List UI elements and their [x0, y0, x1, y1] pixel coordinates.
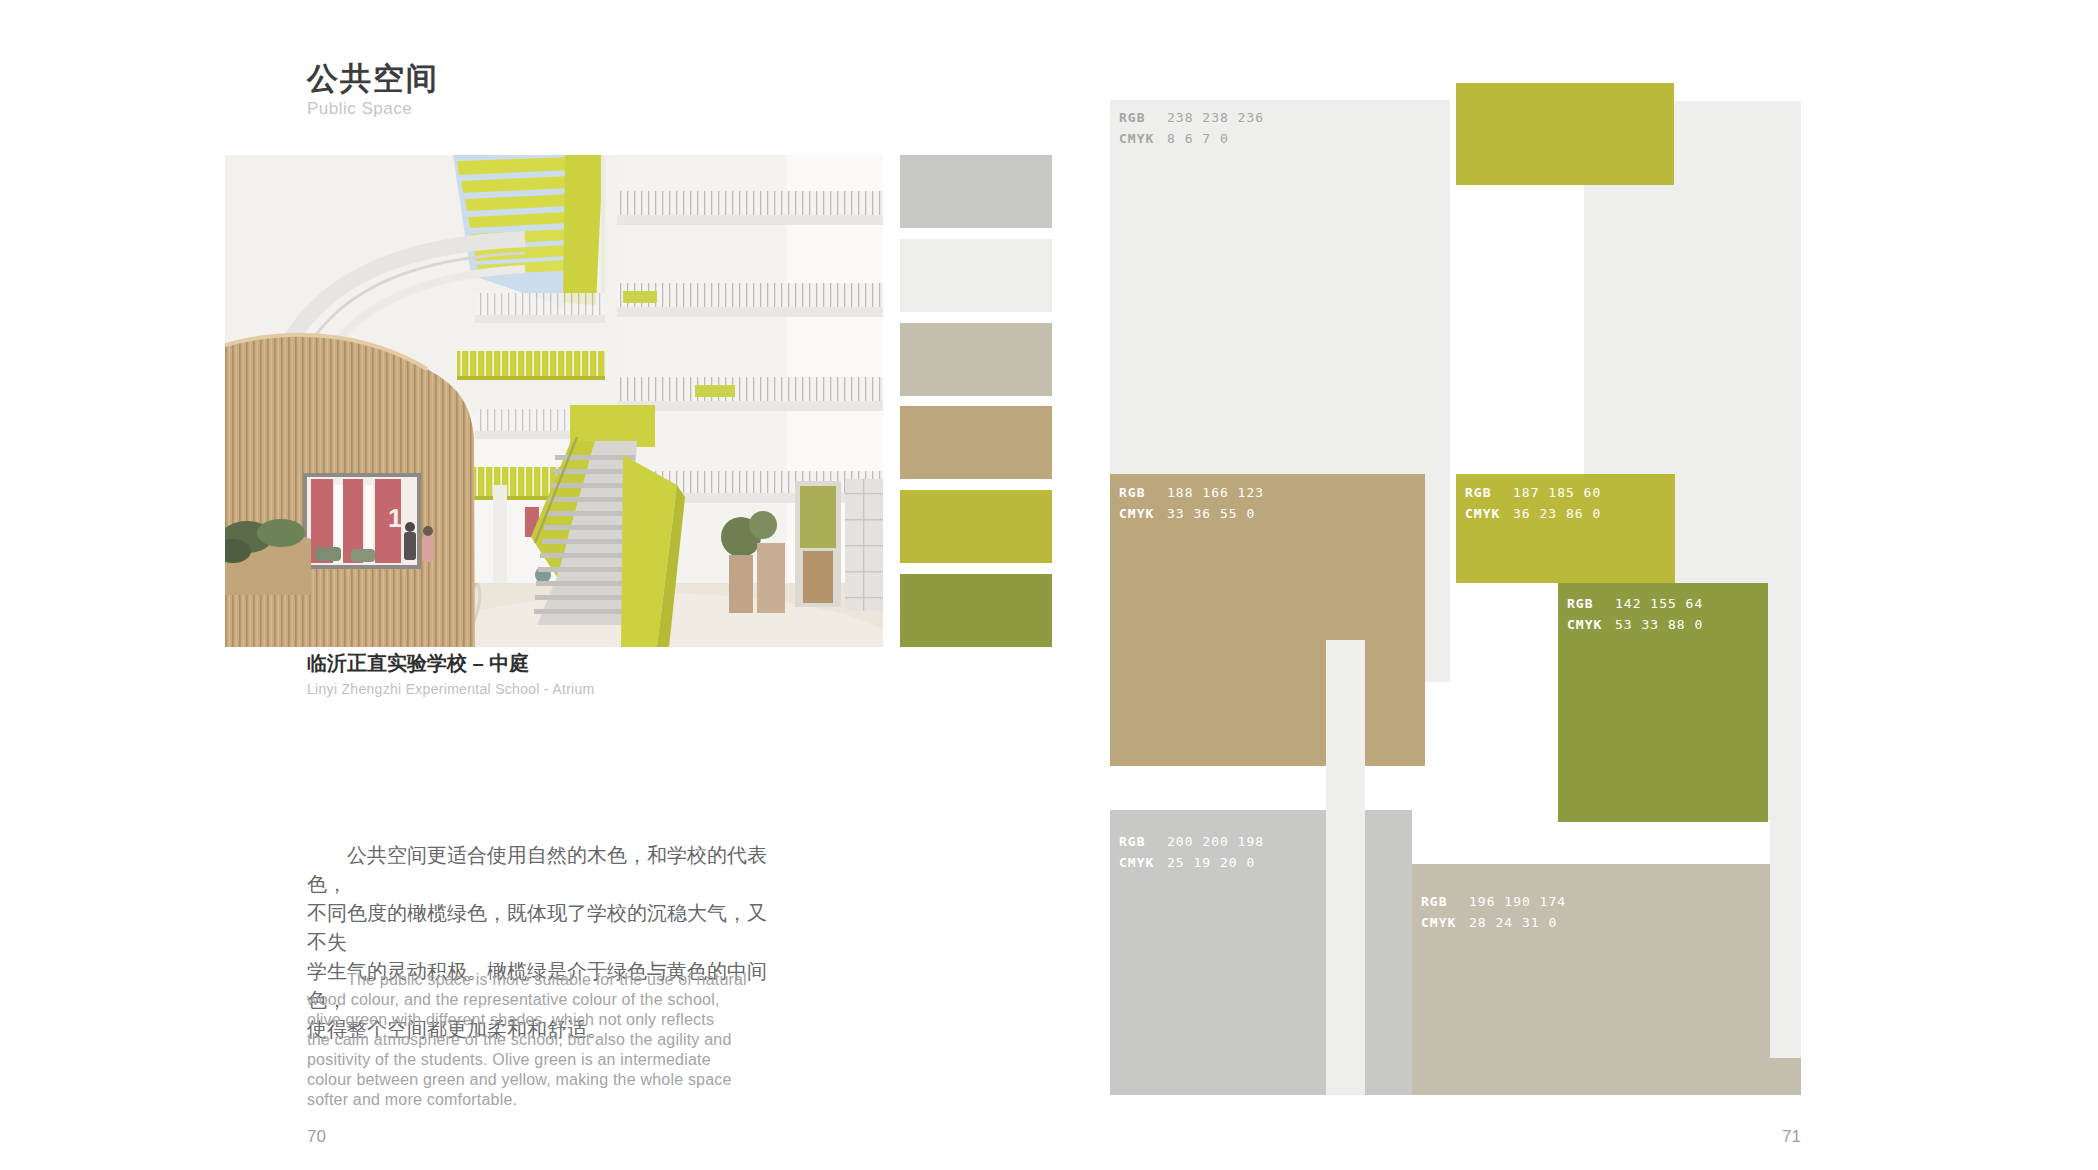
body-zh-line: 不同色度的橄榄绿色，既体现了学校的沉稳大气，又不失: [307, 899, 777, 957]
color-spec-light-gray: RGB238 238 236 CMYK8 6 7 0: [1119, 107, 1264, 149]
color-block-light-strip: [1326, 640, 1365, 1095]
color-block-greige: RGB196 190 174 CMYK28 24 31 0: [1412, 864, 1770, 1095]
color-block-olive: RGB142 155 64 CMYK53 33 88 0: [1558, 583, 1768, 822]
photo-caption-en: Linyi Zhengzhi Experimental School - Atr…: [307, 681, 595, 697]
color-spec-greige: RGB196 190 174 CMYK28 24 31 0: [1421, 891, 1566, 933]
body-en-line: positivity of the students. Olive green …: [307, 1050, 769, 1070]
page-number-left: 70: [307, 1127, 326, 1147]
rgb-label: RGB: [1119, 482, 1167, 503]
swatch-yellow-green: [900, 490, 1052, 563]
cmyk-value: 36 23 86 0: [1513, 503, 1601, 524]
cmyk-value: 25 19 20 0: [1167, 852, 1255, 873]
page-title: 公共空间: [307, 58, 439, 100]
cmyk-value: 28 24 31 0: [1469, 912, 1557, 933]
color-block-greige-extension: [1770, 1058, 1801, 1095]
body-en-line: The public space is more suitable for th…: [307, 970, 769, 990]
swatch-tan: [900, 406, 1052, 479]
rgb-value: 188 166 123: [1167, 482, 1264, 503]
cmyk-value: 33 36 55 0: [1167, 503, 1255, 524]
rgb-value: 196 190 174: [1469, 891, 1566, 912]
page-subtitle: Public Space: [307, 99, 412, 119]
body-paragraph-en: The public space is more suitable for th…: [307, 970, 769, 1110]
spread-page: 公共空间 Public Space: [0, 0, 2098, 1170]
swatch-gray: [900, 155, 1052, 228]
body-en-line: wood colour, and the representative colo…: [307, 990, 769, 1010]
cmyk-label: CMYK: [1421, 912, 1469, 933]
rgb-value: 187 185 60: [1513, 482, 1601, 503]
page-number-right: 71: [1770, 1127, 1801, 1147]
body-zh-line: 公共空间更适合使用自然的木色，和学校的代表色，: [307, 841, 777, 899]
color-block-yellow-green-top: [1456, 83, 1674, 185]
rgb-label: RGB: [1119, 831, 1167, 852]
rgb-label: RGB: [1465, 482, 1513, 503]
cmyk-label: CMYK: [1119, 128, 1167, 149]
color-spec-olive: RGB142 155 64 CMYK53 33 88 0: [1567, 593, 1703, 635]
cmyk-label: CMYK: [1465, 503, 1513, 524]
svg-text:1: 1: [388, 503, 402, 533]
color-block-light-gray-sliver: [1770, 820, 1801, 1058]
atrium-photo: 1: [225, 155, 883, 647]
rgb-value: 142 155 64: [1615, 593, 1703, 614]
rgb-label: RGB: [1567, 593, 1615, 614]
color-spec-yellow-green: RGB187 185 60 CMYK36 23 86 0: [1465, 482, 1601, 524]
body-en-line: olive green with different shades, which…: [307, 1010, 769, 1030]
rgb-value: 200 200 198: [1167, 831, 1264, 852]
swatch-olive-green: [900, 574, 1052, 647]
rgb-label: RGB: [1421, 891, 1469, 912]
color-block-tan: RGB188 166 123 CMYK33 36 55 0: [1110, 474, 1425, 766]
cmyk-label: CMYK: [1567, 614, 1615, 635]
photo-caption-zh: 临沂正直实验学校 – 中庭: [307, 650, 529, 677]
color-block-gray: RGB200 200 198 CMYK25 19 20 0: [1110, 810, 1412, 1095]
swatch-light-gray: [900, 239, 1052, 312]
cmyk-value: 53 33 88 0: [1615, 614, 1703, 635]
body-en-line: colour between green and yellow, making …: [307, 1070, 769, 1090]
color-spec-tan: RGB188 166 123 CMYK33 36 55 0: [1119, 482, 1264, 524]
cmyk-label: CMYK: [1119, 503, 1167, 524]
body-en-line: the calm atmosphere of the school, but a…: [307, 1030, 769, 1050]
cmyk-label: CMYK: [1119, 852, 1167, 873]
rgb-value: 238 238 236: [1167, 107, 1264, 128]
color-block-yellow-green: RGB187 185 60 CMYK36 23 86 0: [1456, 474, 1675, 583]
color-spec-gray: RGB200 200 198 CMYK25 19 20 0: [1119, 831, 1264, 873]
body-en-line: softer and more comfortable.: [307, 1090, 769, 1110]
swatch-greige: [900, 323, 1052, 396]
cmyk-value: 8 6 7 0: [1167, 128, 1229, 149]
atrium-photo-illustration: 1: [225, 155, 883, 647]
rgb-label: RGB: [1119, 107, 1167, 128]
